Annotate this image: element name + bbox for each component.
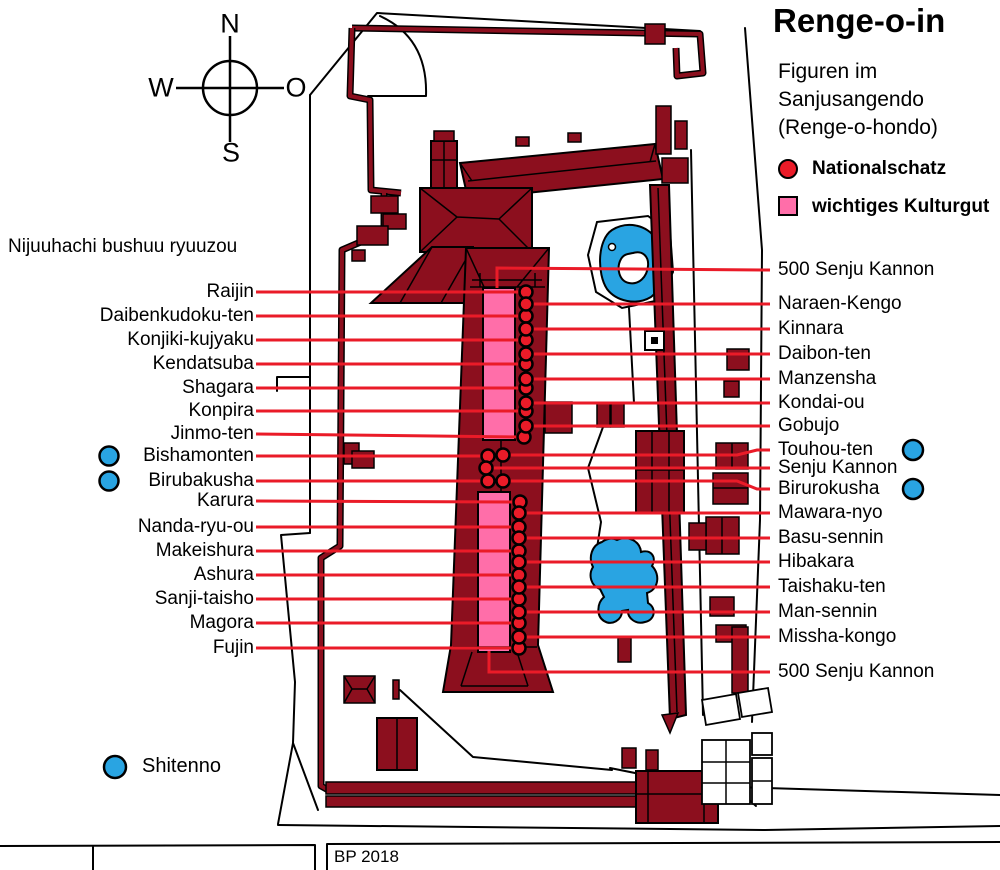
figure-marker-naraen-kengo [520,298,533,311]
hall-east-altar [545,402,572,433]
figure-marker-man-sennin [513,606,526,619]
figure-marker-gobujo [520,420,533,433]
figure-marker-basu-sennin [513,532,526,545]
static-markers [104,756,126,778]
figure-marker-hibakara [513,556,526,569]
pond-stone [609,244,616,251]
figure-marker-missha-kongo [513,631,526,644]
figure-marker-senju-kannon [480,462,493,475]
blue-circle-icon-birurokusha [903,479,923,499]
hall-south-interior [478,492,510,652]
figure-marker-kondai-ou [520,397,533,410]
north-annex [420,188,532,252]
site-map-canvas [0,0,1000,870]
figure-marker-taishaku-ten [513,581,526,594]
blue-circle-icon-touhou-ten [903,440,923,460]
corridor-gate-building [636,431,684,513]
temple-map-page: Renge-o-in Figuren im Sanjusangendo (Ren… [0,0,1000,870]
leader-line-karura [256,501,520,502]
blue-circle-icon-shitenno [104,756,126,778]
figure-marker-mawara-nyo [513,507,526,520]
figure-marker-manzensha [520,373,533,386]
figure-marker-touhou-ten [497,449,510,462]
southeast-white-buildings [702,688,772,804]
figure-marker-birubakusha [482,475,495,488]
figure-marker-daibon-ten [520,348,533,361]
south-pond [591,538,658,623]
figure-marker-birurokusha [497,475,510,488]
compass-rose [176,36,284,142]
blue-circle-icon-birubakusha [100,472,119,491]
blue-circle-icon-bishamonten [100,447,119,466]
figure-marker-kinnara [520,323,533,336]
